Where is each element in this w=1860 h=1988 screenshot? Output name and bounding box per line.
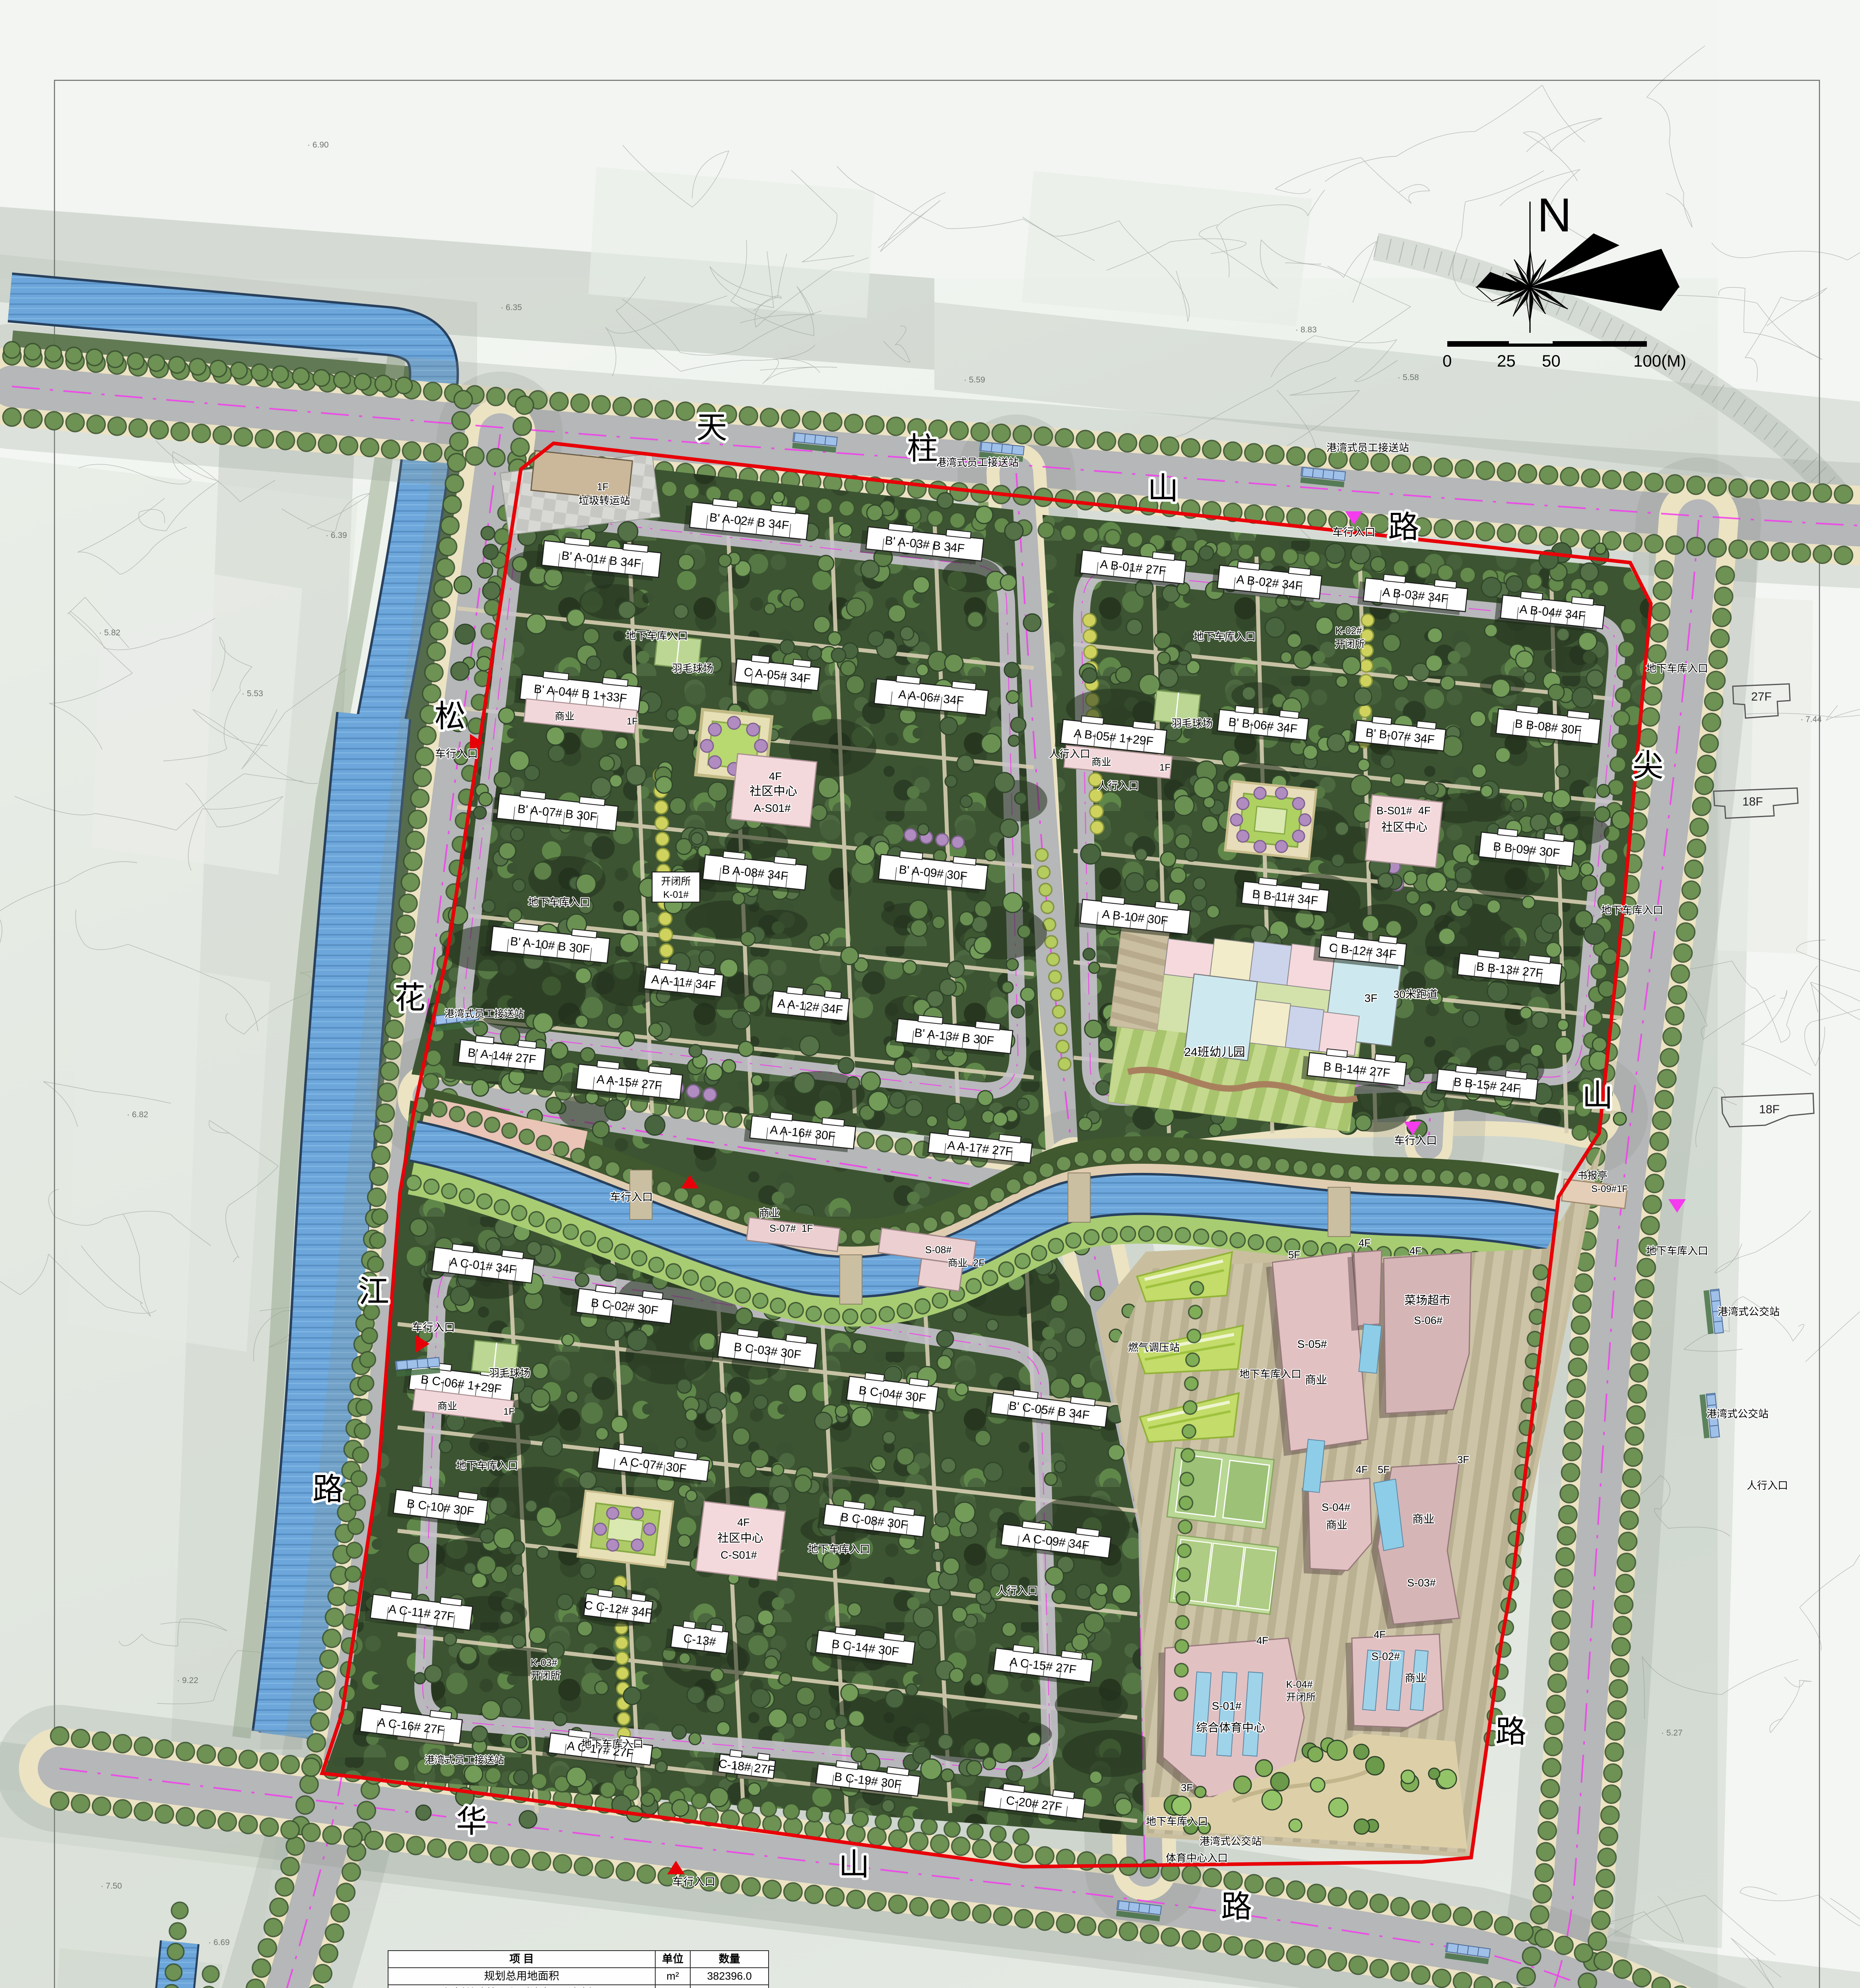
svg-text:18F: 18F	[1759, 1103, 1780, 1116]
svg-text:S-07# 1F: S-07# 1F	[769, 1223, 813, 1234]
svg-text:商业 2F: 商业 2F	[947, 1258, 984, 1269]
svg-text:人行入口: 人行入口	[1049, 748, 1090, 760]
svg-text:商业: 商业	[1326, 1519, 1347, 1531]
svg-text:· 5.27: · 5.27	[1661, 1728, 1683, 1738]
svg-text:体育中心入口: 体育中心入口	[1166, 1852, 1228, 1864]
svg-text:人行入口: 人行入口	[996, 1585, 1038, 1597]
svg-text:燃气调压站: 燃气调压站	[1128, 1342, 1180, 1353]
svg-text:· 5.82: · 5.82	[99, 628, 120, 637]
svg-text:S-02#: S-02#	[1371, 1650, 1400, 1662]
svg-text:车行入口: 车行入口	[412, 1322, 455, 1334]
svg-text:4F: 4F	[737, 1516, 750, 1528]
svg-text:地下车库入口: 地下车库入口	[528, 896, 590, 908]
svg-text:地下车库入口: 地下车库入口	[1601, 904, 1663, 916]
svg-text:路: 路	[1388, 509, 1419, 544]
svg-text:社区中心: 社区中心	[717, 1532, 763, 1545]
svg-text:人行入口: 人行入口	[1747, 1479, 1788, 1491]
svg-text:· 5.53: · 5.53	[242, 689, 263, 698]
svg-text:港湾式员工接送站: 港湾式员工接送站	[1326, 442, 1409, 454]
svg-text:· 9.22: · 9.22	[177, 1676, 198, 1685]
svg-text:地下车库入口: 地下车库入口	[1146, 1815, 1208, 1827]
svg-text:商业: 商业	[1405, 1672, 1426, 1684]
svg-text:羽毛球场: 羽毛球场	[489, 1367, 530, 1379]
svg-text:C-S01#: C-S01#	[720, 1549, 757, 1561]
svg-text:3F: 3F	[1181, 1782, 1193, 1794]
svg-text:车行入口: 车行入口	[1394, 1135, 1437, 1147]
svg-text:K-01#: K-01#	[663, 889, 689, 900]
svg-text:4F: 4F	[1374, 1629, 1386, 1640]
svg-text:商业: 商业	[555, 711, 575, 722]
svg-text:路: 路	[1221, 1889, 1252, 1924]
svg-text:天: 天	[696, 410, 727, 445]
svg-text:18F: 18F	[1742, 795, 1763, 808]
svg-text:· 6.35: · 6.35	[501, 303, 522, 312]
svg-text:商业: 商业	[437, 1401, 457, 1412]
svg-text:24班幼儿园: 24班幼儿园	[1184, 1046, 1245, 1059]
svg-text:山: 山	[1582, 1078, 1613, 1113]
svg-text:4F: 4F	[1256, 1635, 1268, 1646]
svg-text:开闭所: 开闭所	[1286, 1692, 1316, 1703]
svg-text:1F: 1F	[1159, 762, 1171, 773]
svg-text:4F: 4F	[769, 770, 782, 782]
svg-text:S-04#: S-04#	[1322, 1501, 1350, 1513]
svg-text:B-S01# 4F: B-S01# 4F	[1377, 805, 1431, 817]
svg-text:社区中心: 社区中心	[1381, 821, 1427, 834]
svg-text:松: 松	[435, 699, 466, 734]
svg-text:花: 花	[394, 980, 425, 1015]
svg-text:港湾式公交站: 港湾式公交站	[1200, 1835, 1262, 1847]
svg-text:羽毛球场: 羽毛球场	[1171, 717, 1213, 729]
svg-text:S-05#: S-05#	[1297, 1338, 1327, 1350]
svg-text:港湾式员工接送站: 港湾式员工接送站	[936, 456, 1019, 468]
svg-text:社区中心: 社区中心	[749, 785, 797, 798]
svg-text:27F: 27F	[1751, 690, 1772, 703]
svg-text:开闭所: 开闭所	[1335, 639, 1365, 650]
svg-text:商业: 商业	[1412, 1513, 1435, 1525]
svg-text:菜场超市: 菜场超市	[1404, 1294, 1450, 1307]
svg-text:5F: 5F	[1378, 1464, 1390, 1475]
svg-text:S-01#: S-01#	[1212, 1700, 1242, 1712]
svg-text:1F: 1F	[597, 481, 608, 493]
svg-text:4F: 4F	[1356, 1464, 1368, 1475]
svg-text:3F: 3F	[1457, 1454, 1469, 1466]
svg-text:· 7.44: · 7.44	[1800, 715, 1822, 724]
svg-text:商业: 商业	[759, 1207, 780, 1219]
svg-text:· 6.90: · 6.90	[307, 140, 329, 149]
svg-text:人行入口: 人行入口	[1097, 780, 1139, 792]
svg-text:港湾式员工接送站: 港湾式员工接送站	[445, 1008, 524, 1019]
svg-text:· 5.59: · 5.59	[964, 375, 985, 384]
svg-text:路: 路	[313, 1472, 344, 1507]
svg-text:K-04#: K-04#	[1286, 1679, 1313, 1690]
svg-text:· 7.50: · 7.50	[101, 1881, 122, 1891]
svg-text:地下车库入口: 地下车库入口	[1646, 662, 1708, 674]
svg-text:港湾式公交站: 港湾式公交站	[1707, 1408, 1769, 1420]
svg-text:· 8.83: · 8.83	[1295, 325, 1317, 334]
svg-text:25: 25	[1497, 351, 1516, 370]
svg-text:港湾式员工接送站: 港湾式员工接送站	[425, 1755, 504, 1766]
svg-text:4F: 4F	[1359, 1237, 1371, 1249]
svg-text:车行入口: 车行入口	[610, 1191, 653, 1203]
svg-text:100(M): 100(M)	[1633, 351, 1686, 370]
svg-text:垃圾转运站: 垃圾转运站	[579, 495, 630, 507]
svg-text:路: 路	[1495, 1714, 1526, 1749]
svg-text:羽毛球场: 羽毛球场	[672, 662, 713, 674]
svg-text:· 6.69: · 6.69	[208, 1938, 230, 1947]
svg-text:4F: 4F	[1410, 1245, 1421, 1257]
svg-text:港湾式公交站: 港湾式公交站	[1718, 1306, 1780, 1318]
svg-text:S-09#1F: S-09#1F	[1591, 1184, 1628, 1194]
svg-text:S-03#: S-03#	[1407, 1577, 1436, 1589]
svg-text:江: 江	[358, 1274, 389, 1309]
svg-text:1F: 1F	[503, 1406, 515, 1417]
svg-text:山: 山	[1147, 471, 1179, 506]
svg-text:地下车库入口: 地下车库入口	[581, 1738, 643, 1750]
svg-text:N: N	[1537, 188, 1572, 242]
svg-text:S-06#: S-06#	[1414, 1314, 1443, 1326]
svg-text:A-S01#: A-S01#	[753, 802, 791, 814]
svg-text:地下车库入口: 地下车库入口	[626, 630, 688, 642]
svg-text:综合体育中心: 综合体育中心	[1196, 1721, 1265, 1734]
svg-text:开闭所: 开闭所	[530, 1670, 560, 1681]
svg-text:地下车库入口: 地下车库入口	[808, 1543, 870, 1555]
svg-text:车行入口: 车行入口	[1332, 526, 1375, 538]
svg-text:K-02#: K-02#	[1336, 625, 1362, 637]
svg-text:· 6.39: · 6.39	[326, 531, 347, 540]
svg-text:地下车库入口: 地下车库入口	[1194, 631, 1256, 643]
svg-text:车行入口: 车行入口	[435, 748, 478, 760]
svg-text:· 6.82: · 6.82	[127, 1110, 148, 1119]
svg-text:· 5.58: · 5.58	[1398, 373, 1419, 382]
svg-text:S-08#: S-08#	[925, 1244, 952, 1256]
svg-text:开闭所: 开闭所	[661, 876, 691, 887]
svg-text:华: 华	[456, 1804, 487, 1839]
svg-text:尖: 尖	[1633, 748, 1664, 783]
svg-text:1F: 1F	[627, 716, 638, 727]
svg-text:5F: 5F	[1288, 1249, 1300, 1261]
svg-text:书报亭: 书报亭	[1577, 1170, 1607, 1181]
svg-text:地下车库入口: 地下车库入口	[1646, 1245, 1708, 1257]
svg-text:K-03#: K-03#	[531, 1657, 557, 1668]
svg-text:3F: 3F	[1365, 992, 1378, 1004]
svg-text:0: 0	[1443, 351, 1452, 370]
svg-text:地下车库入口: 地下车库入口	[1239, 1368, 1301, 1380]
svg-text:商业: 商业	[1305, 1374, 1327, 1386]
svg-text:50: 50	[1542, 351, 1561, 370]
svg-text:山: 山	[839, 1847, 870, 1882]
svg-text:柱: 柱	[907, 431, 938, 466]
svg-text:车行入口: 车行入口	[672, 1876, 715, 1888]
svg-text:商业: 商业	[1091, 757, 1111, 768]
svg-text:地下车库入口: 地下车库入口	[456, 1460, 518, 1472]
svg-text:30米跑道: 30米跑道	[1393, 988, 1437, 1000]
